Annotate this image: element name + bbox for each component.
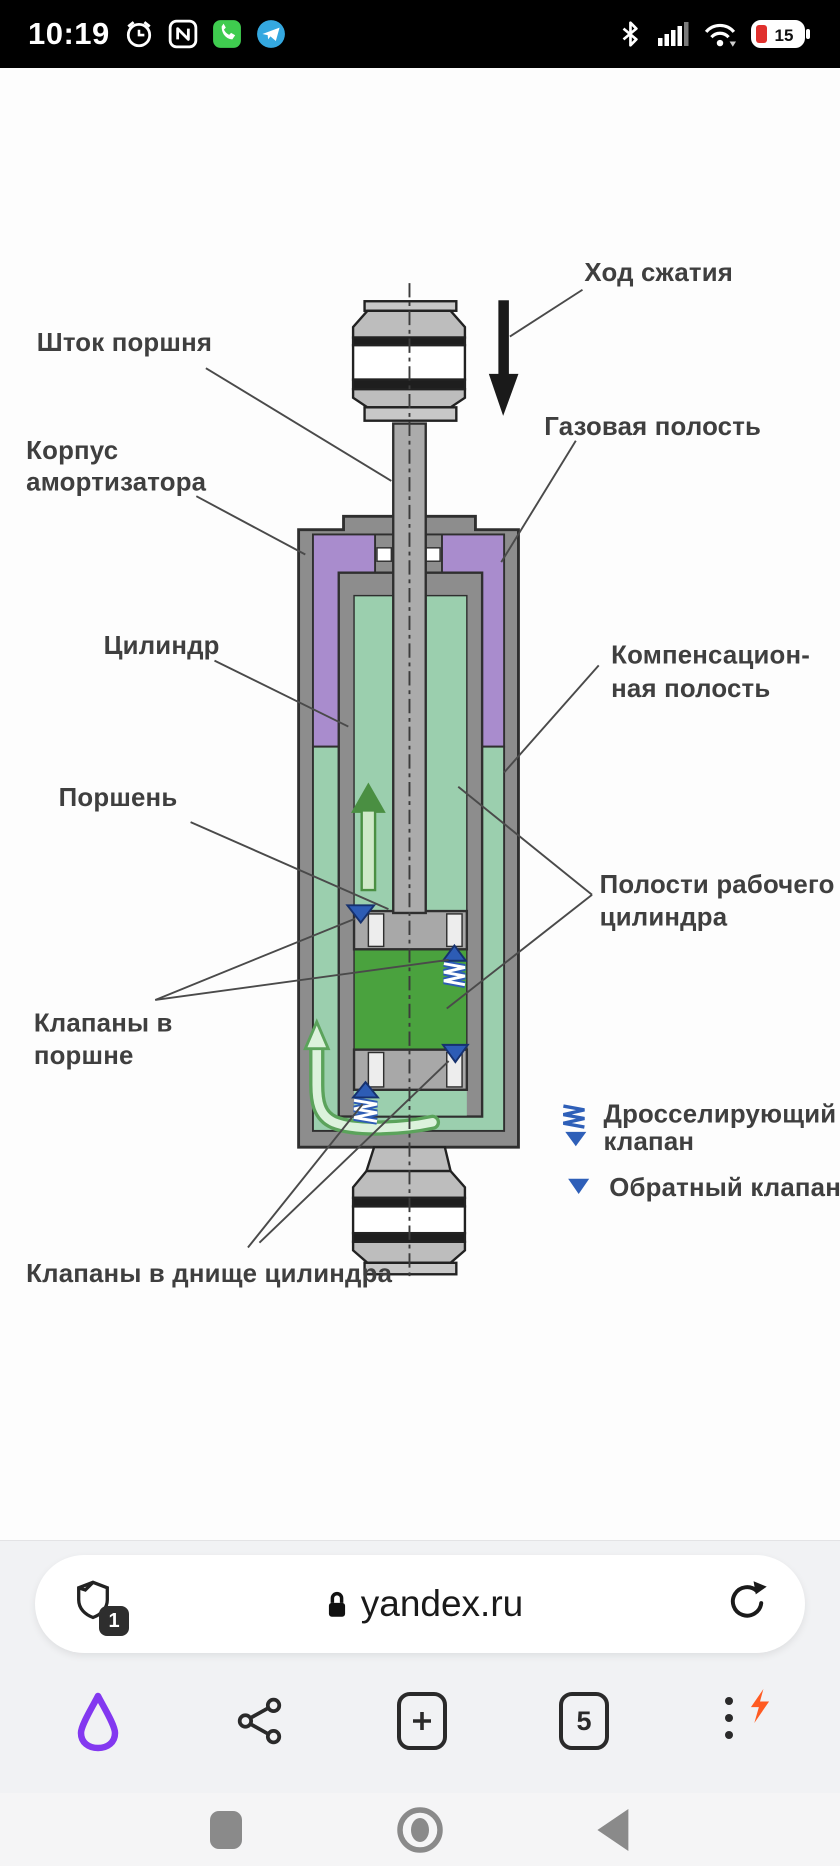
back-button[interactable]: [584, 1800, 644, 1860]
share-icon: [235, 1696, 285, 1746]
label-piston-valves-line2: поршне: [34, 1042, 134, 1070]
label-piston: Поршень: [59, 784, 178, 812]
label-base-valves: Клапаны в днище цилиндра: [26, 1260, 392, 1288]
label-piston-rod: Шток поршня: [37, 329, 212, 357]
address-bar[interactable]: 1 yandex.ru: [35, 1555, 805, 1653]
telegram-icon: [256, 19, 286, 49]
reload-icon: [725, 1579, 769, 1625]
browser-chrome: 1 yandex.ru: [0, 1540, 840, 1866]
label-gas-cavity: Газовая полость: [544, 413, 761, 441]
legend-throttle-valve-line1: Дросселирующий: [604, 1100, 837, 1128]
tab-count: 5: [576, 1706, 591, 1737]
shock-absorber-diagram: Ход сжатия Шток поршня Корпус амортизато…: [0, 68, 840, 1540]
phone-screen: 10:19 15: [0, 0, 840, 1866]
recents-button[interactable]: [196, 1800, 256, 1860]
yandex-home-button[interactable]: [62, 1685, 134, 1757]
label-working-cavities-line2: цилиндра: [600, 903, 728, 931]
recents-icon: [208, 1809, 244, 1851]
home-button[interactable]: [390, 1800, 450, 1860]
label-body-line2: амортизатора: [26, 468, 206, 496]
wifi-icon: [704, 21, 736, 47]
browser-toolbar: 5: [0, 1681, 840, 1761]
kebab-menu-icon: [725, 1697, 733, 1739]
alarm-icon: [124, 19, 154, 49]
check-valve-icon: [568, 1179, 589, 1194]
adblock-shield-button[interactable]: 1: [71, 1576, 123, 1632]
throttle-valve-icon: [563, 1106, 586, 1146]
signal-icon: [658, 20, 690, 48]
status-bar: 10:19 15: [0, 0, 840, 68]
lock-icon: [325, 1589, 349, 1619]
webpage-content: Ход сжатия Шток поршня Корпус амортизато…: [0, 68, 840, 1540]
plus-icon: [397, 1692, 447, 1750]
share-button[interactable]: [224, 1685, 296, 1757]
new-tab-button[interactable]: [386, 1685, 458, 1757]
label-piston-valves-line1: Клапаны в: [34, 1009, 173, 1037]
android-navbar: [0, 1793, 840, 1866]
home-icon: [395, 1805, 445, 1855]
tabs-button[interactable]: 5: [548, 1685, 620, 1757]
label-cylinder: Цилиндр: [104, 632, 220, 660]
url-text: yandex.ru: [361, 1583, 524, 1625]
label-compensation-line2: ная полость: [611, 675, 770, 703]
bluetooth-icon: [618, 19, 644, 49]
reload-button[interactable]: [725, 1579, 769, 1630]
label-compensation-line1: Компенсацион-: [611, 641, 810, 669]
nfc-icon: [168, 19, 198, 49]
label-body-line1: Корпус: [26, 437, 118, 465]
yandex-browser-icon: [69, 1689, 127, 1753]
whatsapp-icon: [212, 19, 242, 49]
label-compression-stroke: Ход сжатия: [584, 259, 733, 287]
blocked-count-badge: 1: [99, 1606, 129, 1636]
menu-button[interactable]: [710, 1685, 782, 1757]
compression-arrow: [489, 300, 519, 416]
clock-time: 10:19: [28, 16, 110, 52]
legend-icons: [563, 1106, 589, 1194]
label-working-cavities-line1: Полости рабочего: [600, 871, 835, 899]
legend-check-valve: Обратный клапан: [609, 1174, 840, 1202]
battery-percent: 15: [775, 26, 794, 45]
url-display[interactable]: yandex.ru: [325, 1583, 524, 1625]
legend-throttle-valve-line2: клапан: [604, 1128, 695, 1156]
lightning-icon: [747, 1689, 773, 1723]
battery-icon: 15: [750, 19, 812, 49]
back-icon: [597, 1809, 631, 1851]
